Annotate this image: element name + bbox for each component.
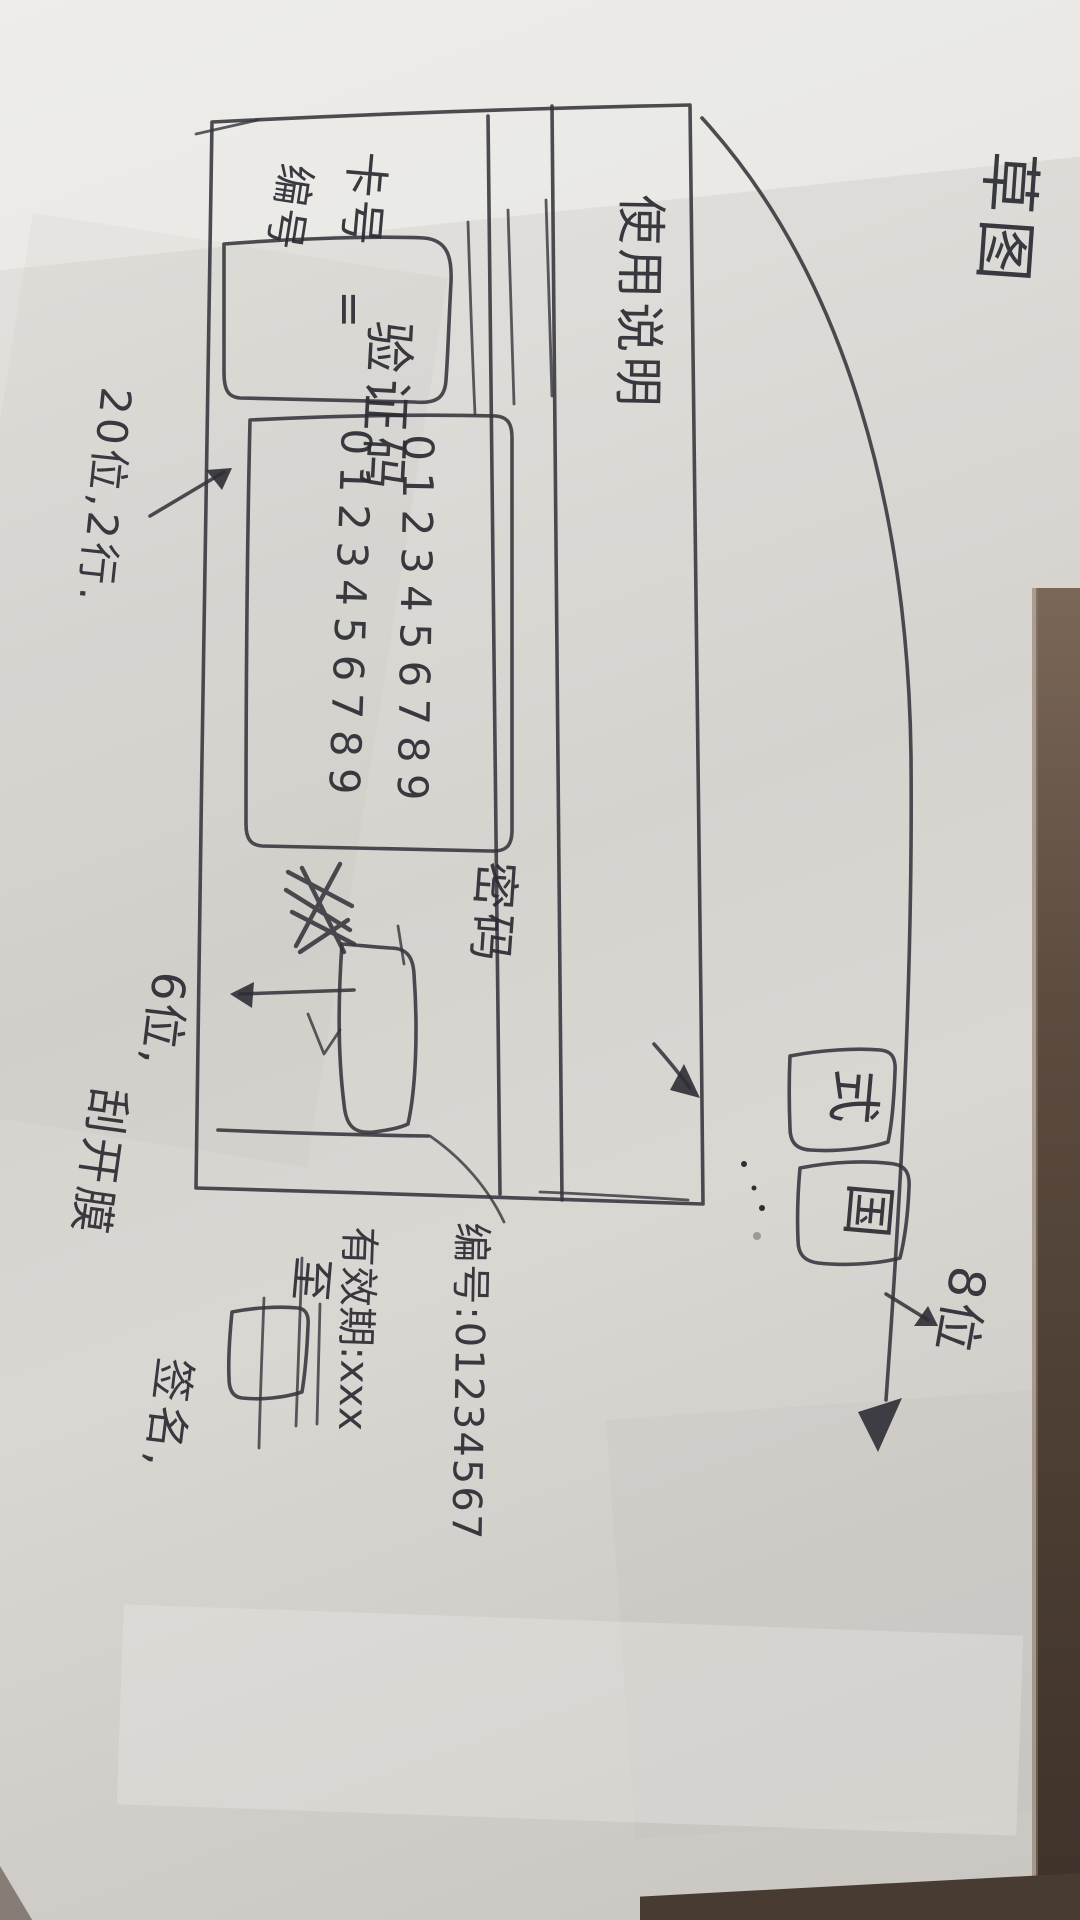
- serial-number-label: 编号: [258, 160, 320, 255]
- scratch-box-tick: [398, 926, 404, 964]
- instructions-text-line: [468, 222, 475, 414]
- crossed-out-scribble: [286, 864, 354, 952]
- serial-number-text: 编号:01234567: [442, 1222, 494, 1542]
- bottom-strip-line: [218, 1130, 428, 1136]
- wireframe-sketch: 草图 使用说明 卡号 编号 = 验证码 0123456789 012345678…: [0, 0, 1080, 1920]
- digits-count-note: 20位,2行.: [69, 385, 141, 608]
- scratch-note-line1: 6位,: [131, 969, 196, 1071]
- card-number-digits-row2: 0123456789: [387, 434, 443, 812]
- validity-underline: [259, 1298, 264, 1448]
- ink-speck: [759, 1205, 765, 1211]
- sketch-title-label: 草图: [966, 149, 1048, 290]
- arrowhead: [858, 1398, 902, 1452]
- instructions-text-line: [546, 200, 552, 396]
- chip2-label: 国: [834, 1181, 901, 1240]
- password-label: 密码: [461, 859, 524, 967]
- bottom-strip-curve: [430, 1136, 504, 1222]
- arrowhead: [230, 982, 254, 1008]
- instructions-text-line: [508, 210, 514, 404]
- chip1-label: 式: [820, 1067, 887, 1126]
- until-label: 至: [283, 1255, 338, 1303]
- card-number-digits-row1: 0123456789: [319, 428, 381, 807]
- instructions-title: 使用说明: [608, 194, 670, 411]
- scratch-note-line2: 刮开膜: [62, 1084, 136, 1240]
- signature-label: 签名,: [135, 1355, 200, 1474]
- card-number-label: 卡号: [333, 149, 395, 249]
- ink-speck: [741, 1161, 747, 1167]
- card-divider-line: [552, 106, 562, 1200]
- scratch-note-arrow: [240, 990, 354, 994]
- scratch-note-check: [308, 1014, 340, 1054]
- validity-text: 有效期:xxx: [329, 1226, 382, 1432]
- paper-photo: 草图 使用说明 卡号 编号 = 验证码 0123456789 012345678…: [0, 0, 1080, 1920]
- serial-digits-note: 8位: [925, 1262, 998, 1361]
- scratch-area-box: [339, 944, 416, 1132]
- card-divider-line: [488, 116, 500, 1194]
- until-line: [317, 1304, 320, 1424]
- ink-speck: [753, 1232, 761, 1240]
- ink-speck: [752, 1186, 757, 1191]
